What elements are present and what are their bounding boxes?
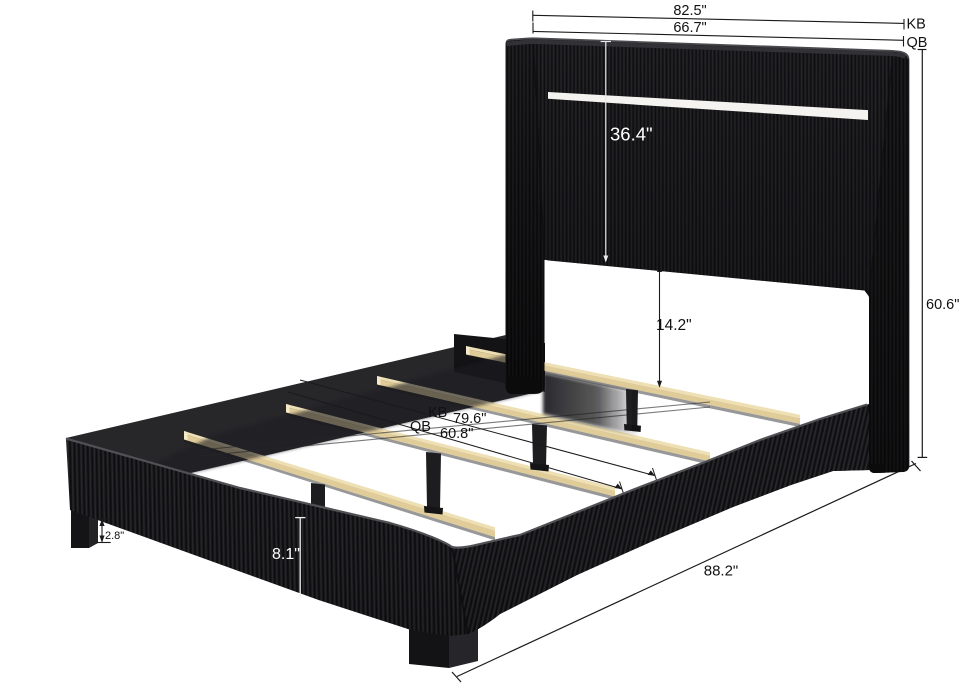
svg-text:66.7": 66.7" xyxy=(673,20,706,36)
svg-text:79.6": 79.6" xyxy=(453,411,486,427)
svg-text:2.8": 2.8" xyxy=(105,530,124,542)
svg-text:QB: QB xyxy=(410,419,431,435)
svg-text:88.2": 88.2" xyxy=(704,563,739,580)
svg-text:14.2": 14.2" xyxy=(656,317,692,334)
svg-text:8.1": 8.1" xyxy=(272,546,300,563)
svg-text:36.4": 36.4" xyxy=(610,124,653,145)
svg-text:QB: QB xyxy=(907,35,928,51)
svg-text:KB: KB xyxy=(907,17,926,33)
svg-text:82.5": 82.5" xyxy=(673,3,706,19)
svg-text:60.6": 60.6" xyxy=(926,297,959,313)
svg-text:60.8": 60.8" xyxy=(440,426,473,442)
